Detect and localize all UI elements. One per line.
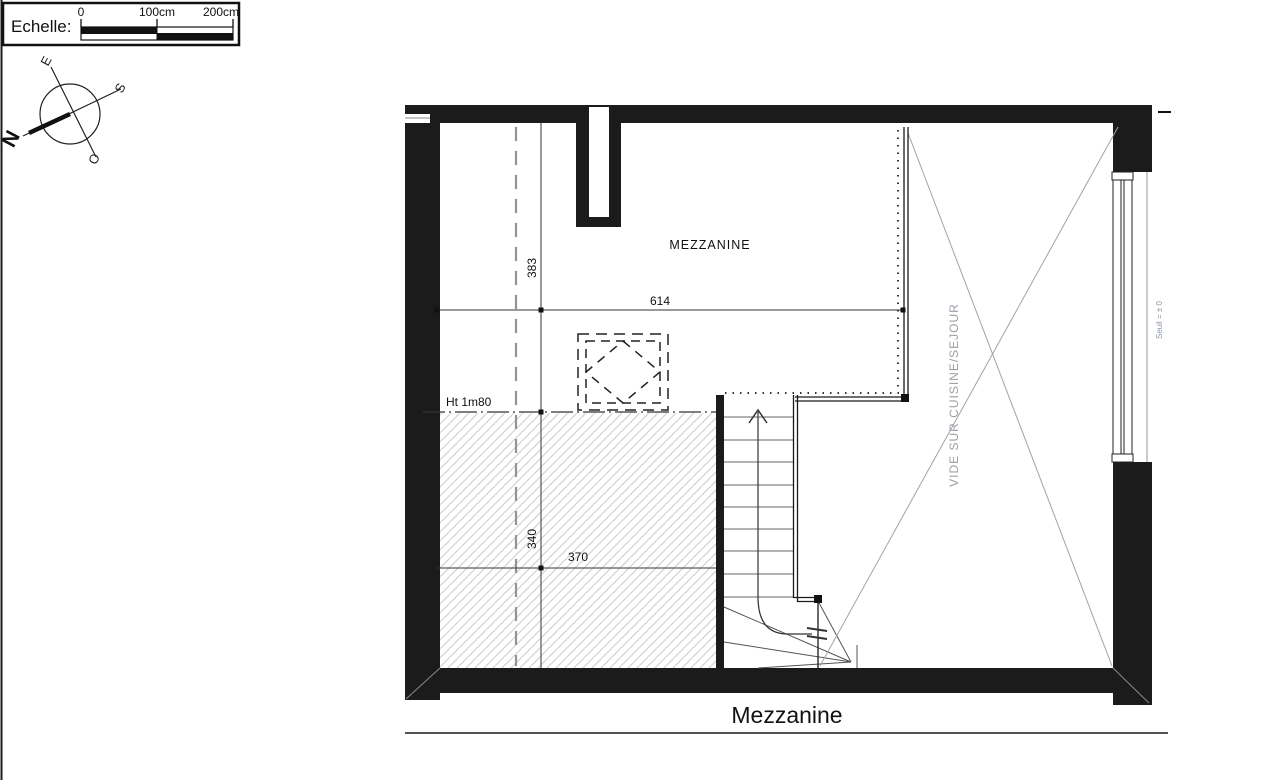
roof-window-diamond	[586, 341, 660, 403]
wall-top	[405, 105, 1152, 123]
wall-left	[405, 105, 440, 700]
floor-edge-guard	[795, 127, 908, 401]
room-label: MEZZANINE	[669, 238, 750, 252]
handrail-post	[814, 595, 822, 603]
scale-tick-200: 200cm	[203, 5, 239, 19]
compass-label-north: N	[0, 127, 25, 151]
window-right	[1112, 172, 1147, 462]
roof-window-inner	[586, 341, 660, 403]
floor-edge-dotted	[725, 130, 900, 393]
compass-label-west: O	[85, 151, 103, 167]
wall-right-bottom	[1113, 462, 1152, 705]
stair-handrail	[794, 395, 819, 668]
dim-label-383: 383	[525, 258, 539, 278]
low-ceiling-hatch-area	[440, 413, 716, 668]
void-area: VIDE SUR CUISINE/SEJOUR	[725, 127, 1118, 666]
height-note-label: Ht 1m80	[446, 395, 492, 409]
dim-label-614: 614	[650, 294, 670, 308]
roof-window-outer	[578, 334, 668, 410]
scale-tick-100: 100cm	[139, 5, 175, 19]
dim-label-370: 370	[568, 550, 588, 564]
scale-bar: Echelle: 0 100cm 200cm	[3, 3, 239, 45]
stair-walk-line	[758, 412, 812, 634]
drawing-title-block: Mezzanine	[405, 702, 1168, 733]
compass-label-east: E	[37, 53, 54, 68]
wall-bottom	[405, 668, 1152, 693]
dim-label-340: 340	[525, 529, 539, 549]
compass-north-arrow	[29, 114, 70, 133]
scale-bar-graphic	[81, 27, 233, 40]
drawing-title: Mezzanine	[731, 702, 842, 728]
compass-rose: N S E O	[0, 53, 129, 167]
scale-tick-0: 0	[78, 5, 85, 19]
void-label: VIDE SUR CUISINE/SEJOUR	[947, 303, 961, 487]
floor-plan-sheet: Echelle: 0 100cm 200cm N S E O	[0, 0, 1270, 780]
roof-window	[578, 334, 668, 410]
wall-right-top	[1113, 105, 1152, 172]
duct	[576, 107, 621, 227]
stairs	[716, 395, 857, 668]
stair-wall	[716, 395, 724, 668]
guard-corner-post	[901, 394, 909, 402]
scale-bar-label: Echelle:	[11, 17, 71, 36]
void-cross-line-1	[908, 133, 1112, 666]
threshold-label: Seuil = ± 0	[1155, 300, 1164, 339]
